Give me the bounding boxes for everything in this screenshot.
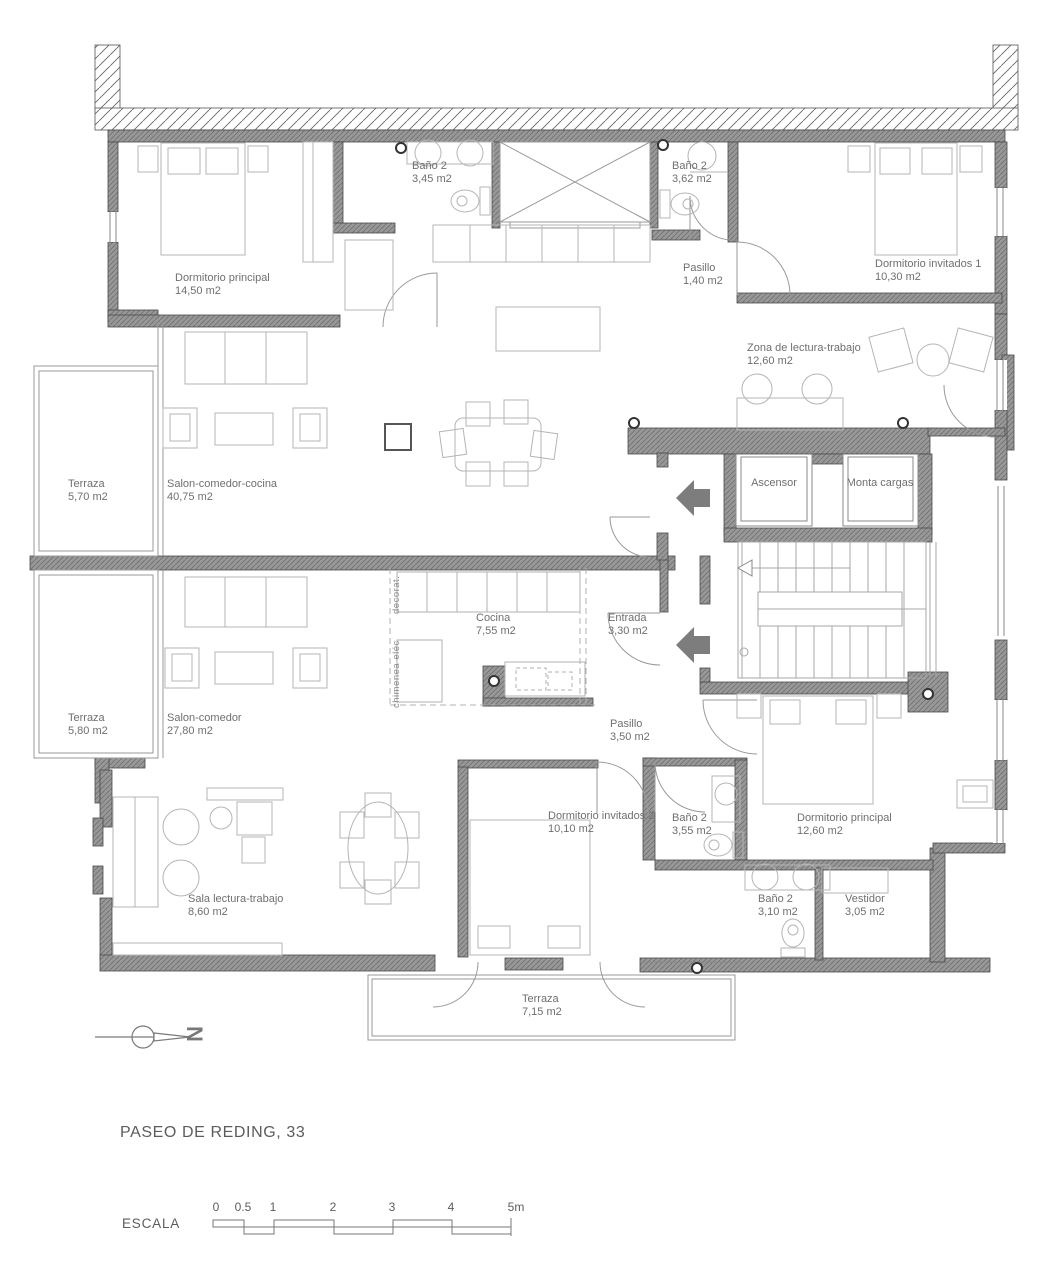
north-arrow: N <box>95 1026 207 1048</box>
room-label-entrada: Entrada 3,30 m2 <box>608 612 648 638</box>
floor-plan-page: N Dormitorio principal 14,50 m2 Baño 2 3… <box>0 0 1038 1282</box>
room-label-bano2-345: Baño 2 3,45 m2 <box>412 160 452 186</box>
room-label-sala-lectura: Sala lectura-trabajo 8,60 m2 <box>188 893 283 919</box>
room-label-bano2-310: Baño 2 3,10 m2 <box>758 893 798 919</box>
room-label-dormitorio-invitados-1: Dormitorio invitados 1 10,30 m2 <box>875 258 981 284</box>
annotation-decorat: decorat. <box>391 566 402 614</box>
room-label-zona-lectura: Zona de lectura-trabajo 12,60 m2 <box>747 342 861 368</box>
scale-tick-0: 0 <box>213 1200 220 1214</box>
scale-tick-3: 3 <box>389 1200 396 1214</box>
scale-label: ESCALA <box>122 1216 180 1231</box>
north-letter: N <box>182 1026 207 1042</box>
room-label-terraza-570: Terraza 5,70 m2 <box>68 478 108 504</box>
room-label-vestidor: Vestidor 3,05 m2 <box>845 893 885 919</box>
scale-tick-1: 1 <box>270 1200 277 1214</box>
scale-tick-5m: 5m <box>508 1200 525 1214</box>
room-label-bano2-362: Baño 2 3,62 m2 <box>672 160 712 186</box>
floor-plan-drawing: N <box>0 0 1038 1282</box>
room-label-monta-cargas: Monta cargas <box>841 477 919 490</box>
room-label-terraza-715: Terraza 7,15 m2 <box>522 993 562 1019</box>
room-label-dormitorio-principal-2: Dormitorio principal 12,60 m2 <box>797 812 892 838</box>
room-label-ascensor: Ascensor <box>736 477 812 490</box>
room-label-salon-comedor-cocina: Salon-comedor-cocina 40,75 m2 <box>167 478 277 504</box>
light-shaft <box>500 142 650 228</box>
room-label-pasillo-350: Pasillo 3,50 m2 <box>610 718 650 744</box>
room-label-pasillo-140: Pasillo 1,40 m2 <box>683 262 723 288</box>
scale-tick-05: 0.5 <box>235 1200 252 1214</box>
plan-title: PASEO DE REDING, 33 <box>120 1124 305 1142</box>
staircase <box>738 542 936 678</box>
room-label-terraza-580: Terraza 5,80 m2 <box>68 712 108 738</box>
annotation-chimenea: chimenea eléc <box>391 628 402 708</box>
exterior-walls <box>30 130 1014 972</box>
room-label-dormitorio-invitados-2: Dormitorio invitados 2 10,10 m2 <box>548 810 654 836</box>
scale-tick-2: 2 <box>330 1200 337 1214</box>
room-label-bano2-355: Baño 2 3,55 m2 <box>672 812 712 838</box>
scale-bar <box>213 1218 511 1236</box>
windows <box>106 188 1007 962</box>
scale-tick-4: 4 <box>448 1200 455 1214</box>
room-label-salon-comedor: Salon-comedor 27,80 m2 <box>167 712 242 738</box>
room-label-dormitorio-principal-1: Dormitorio principal 14,50 m2 <box>175 272 270 298</box>
party-wall-structures <box>95 45 1018 130</box>
room-label-cocina: Cocina 7,55 m2 <box>476 612 516 638</box>
